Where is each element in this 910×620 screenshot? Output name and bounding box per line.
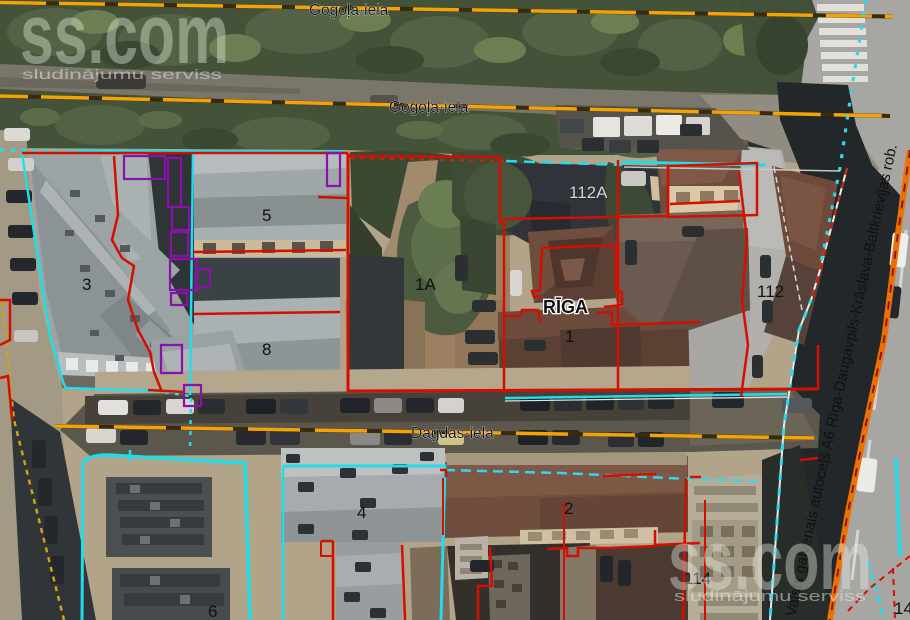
- svg-text:112: 112: [757, 282, 784, 301]
- svg-text:RĪGA: RĪGA: [543, 297, 588, 317]
- svg-text:Gogoļa·iela: Gogoļa·iela: [309, 2, 389, 19]
- svg-text:Dagdas·iela: Dagdas·iela: [411, 425, 494, 442]
- svg-text:14: 14: [894, 599, 910, 618]
- svg-text:8: 8: [262, 340, 271, 359]
- svg-text:112A: 112A: [569, 183, 608, 202]
- svg-text:sludinājumu serviss: sludinājumu serviss: [674, 588, 866, 605]
- svg-text:2: 2: [564, 499, 573, 518]
- svg-text:1A: 1A: [415, 275, 436, 294]
- svg-text:5: 5: [262, 206, 271, 225]
- svg-text:1: 1: [565, 327, 574, 346]
- svg-text:Gogoļa·iela: Gogoļa·iela: [389, 99, 469, 116]
- svg-text:6: 6: [208, 602, 217, 620]
- svg-text:3: 3: [82, 275, 91, 294]
- svg-text:4: 4: [357, 503, 366, 522]
- svg-text:sludinājumu serviss: sludinājumu serviss: [22, 66, 222, 82]
